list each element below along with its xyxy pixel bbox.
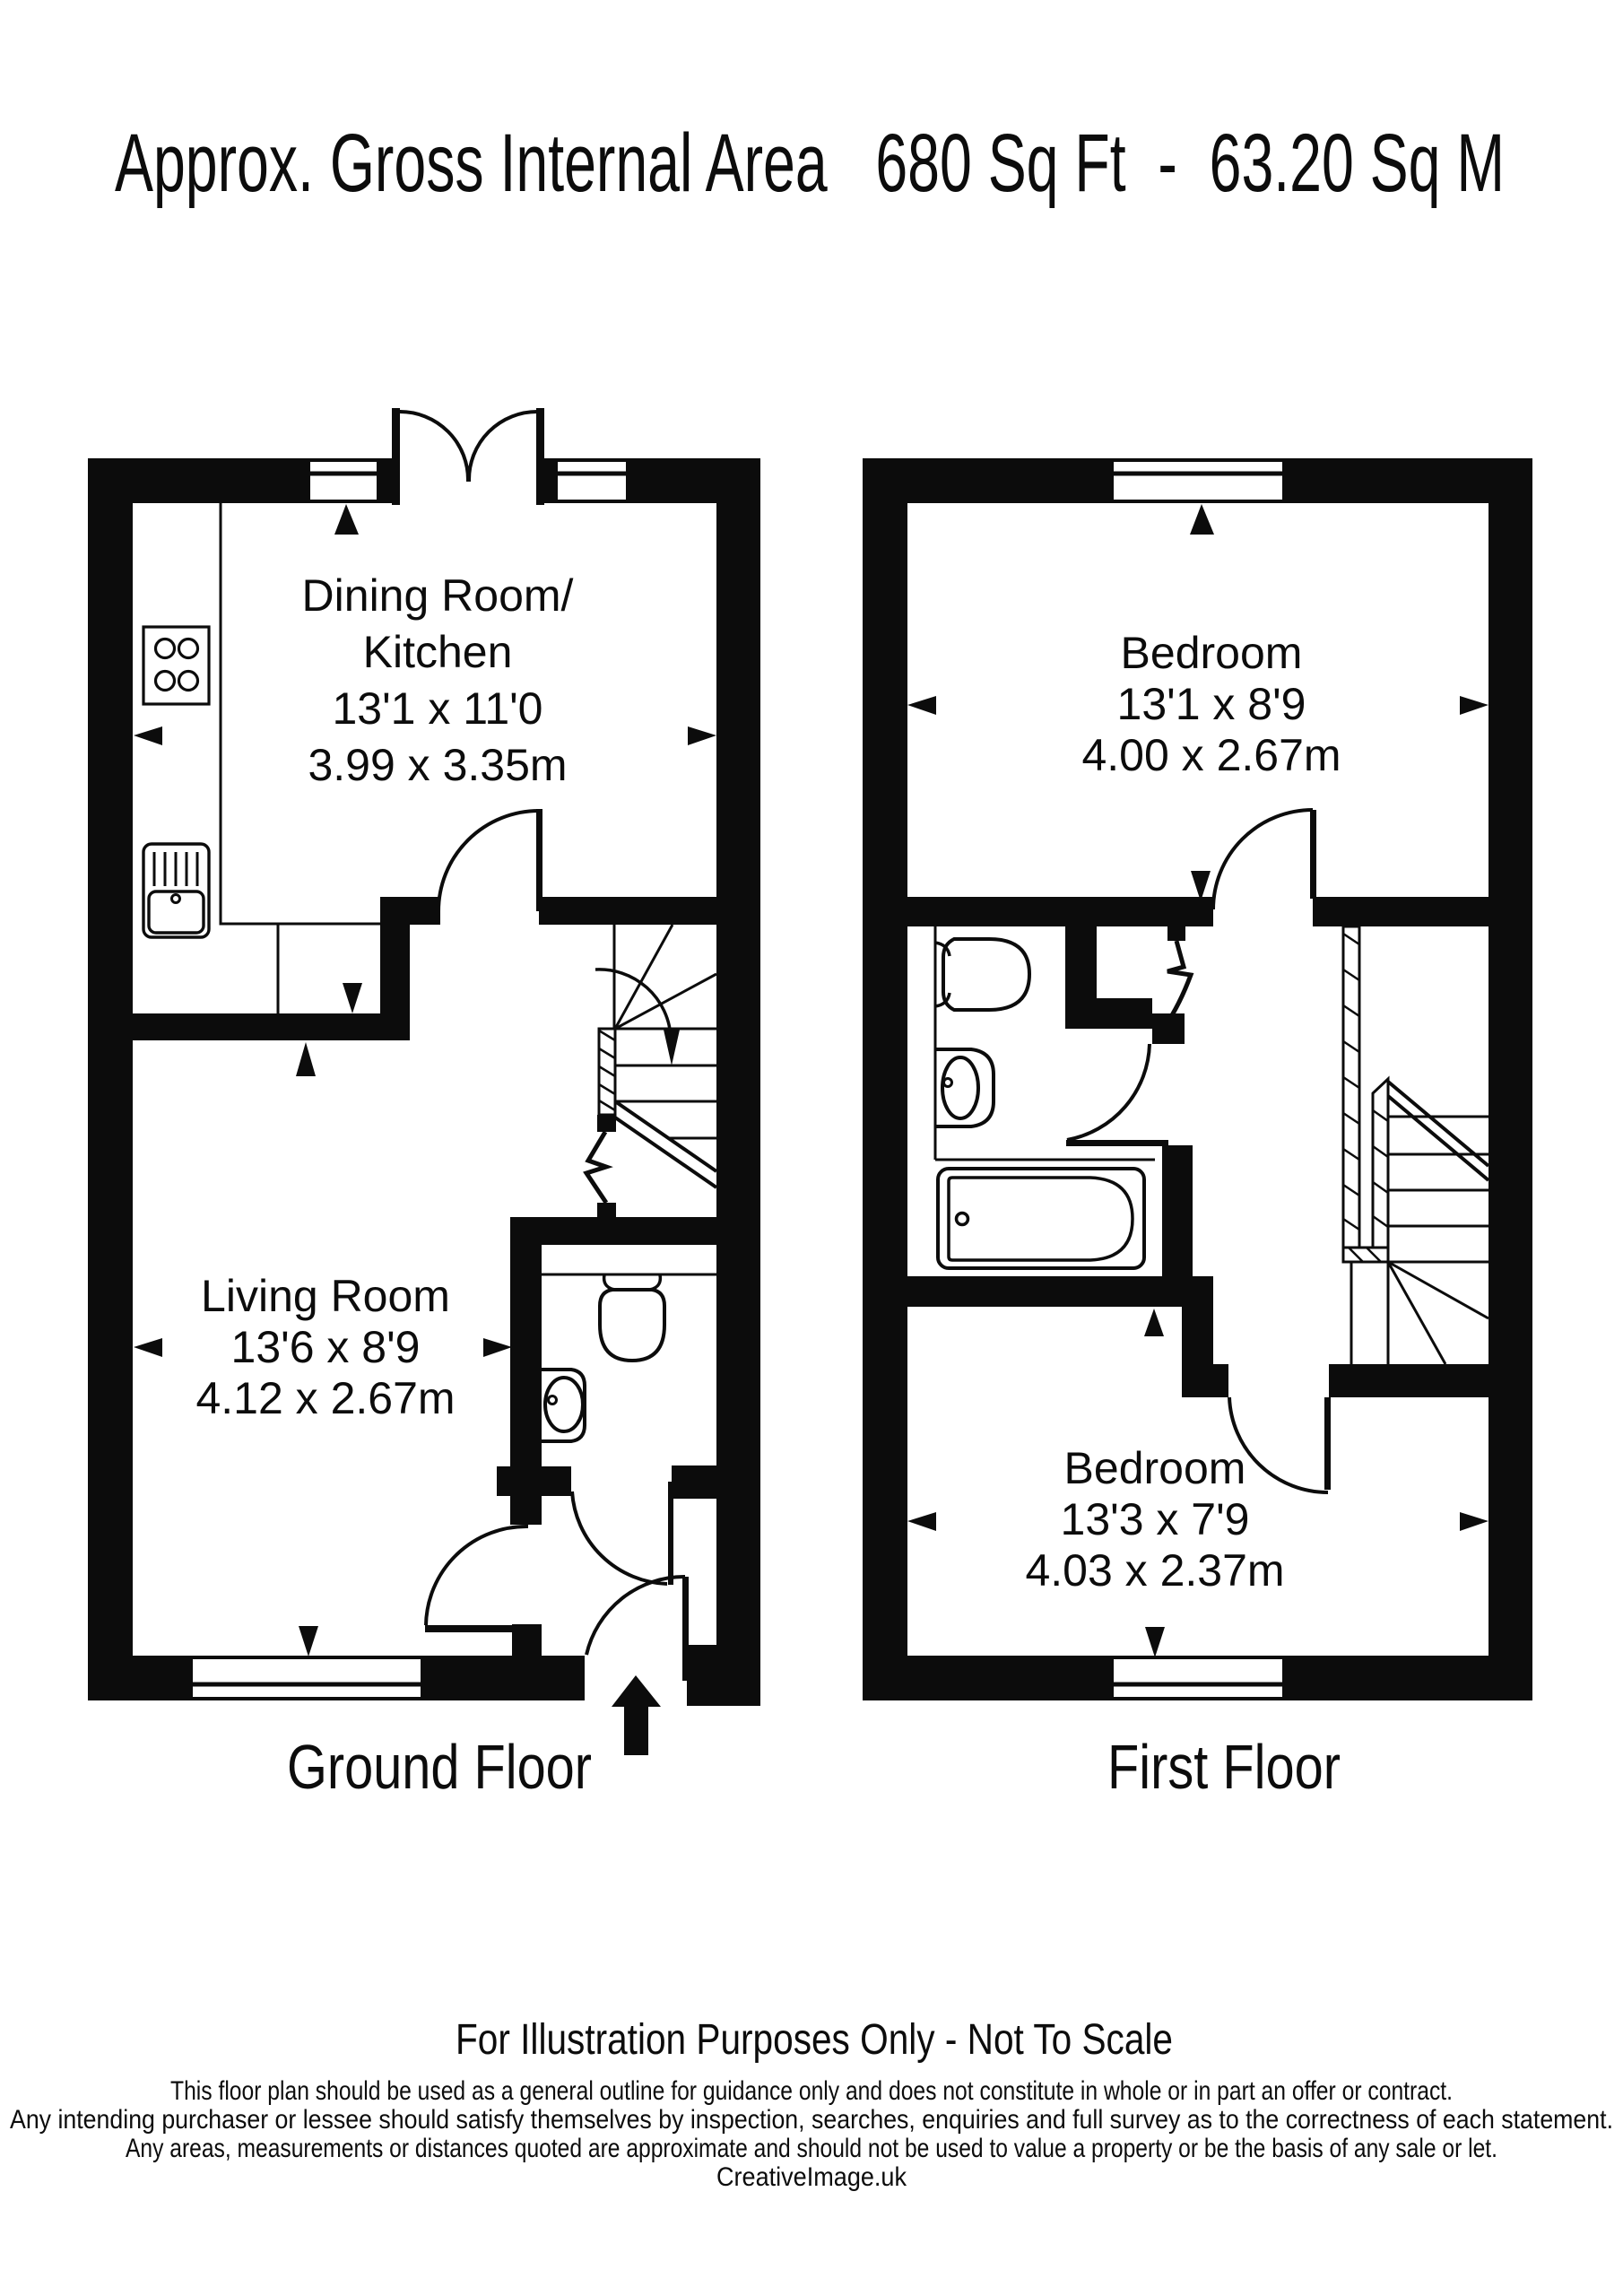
svg-text:Any areas, measurements or dis: Any areas, measurements or distances quo… <box>126 2134 1497 2163</box>
svg-text:3.99 x 3.35m: 3.99 x 3.35m <box>308 740 567 790</box>
svg-text:13'1 x 8'9: 13'1 x 8'9 <box>1117 679 1306 729</box>
svg-text:This floor plan should be used: This floor plan should be used as a gene… <box>170 2076 1453 2106</box>
svg-text:4.03 x 2.37m: 4.03 x 2.37m <box>1025 1545 1284 1596</box>
svg-text:4.00 x 2.67m: 4.00 x 2.67m <box>1081 730 1341 780</box>
svg-text:Any intending purchaser or les: Any intending purchaser or lessee should… <box>10 2105 1613 2135</box>
svg-text:Ground Floor: Ground Floor <box>287 1732 592 1802</box>
svg-text:Kitchen: Kitchen <box>363 627 513 677</box>
svg-text:4.12 x 2.67m: 4.12 x 2.67m <box>195 1373 455 1423</box>
svg-text:Approx. Gross Internal Area: Approx. Gross Internal Area 680 Sq Ft - … <box>115 117 1505 209</box>
svg-text:13'1 x 11'0: 13'1 x 11'0 <box>332 683 542 734</box>
svg-text:13'3 x 7'9: 13'3 x 7'9 <box>1061 1494 1250 1544</box>
svg-text:Living Room: Living Room <box>201 1271 450 1321</box>
svg-text:Bedroom: Bedroom <box>1064 1443 1246 1493</box>
svg-text:Dining Room/: Dining Room/ <box>302 570 574 621</box>
svg-text:First Floor: First Floor <box>1107 1732 1341 1802</box>
svg-text:CreativeImage.uk: CreativeImage.uk <box>716 2162 907 2192</box>
svg-text:For Illustration Purposes Only: For Illustration Purposes Only - Not To … <box>456 2016 1173 2064</box>
svg-text:13'6 x 8'9: 13'6 x 8'9 <box>231 1322 421 1372</box>
svg-text:Bedroom: Bedroom <box>1121 628 1303 678</box>
